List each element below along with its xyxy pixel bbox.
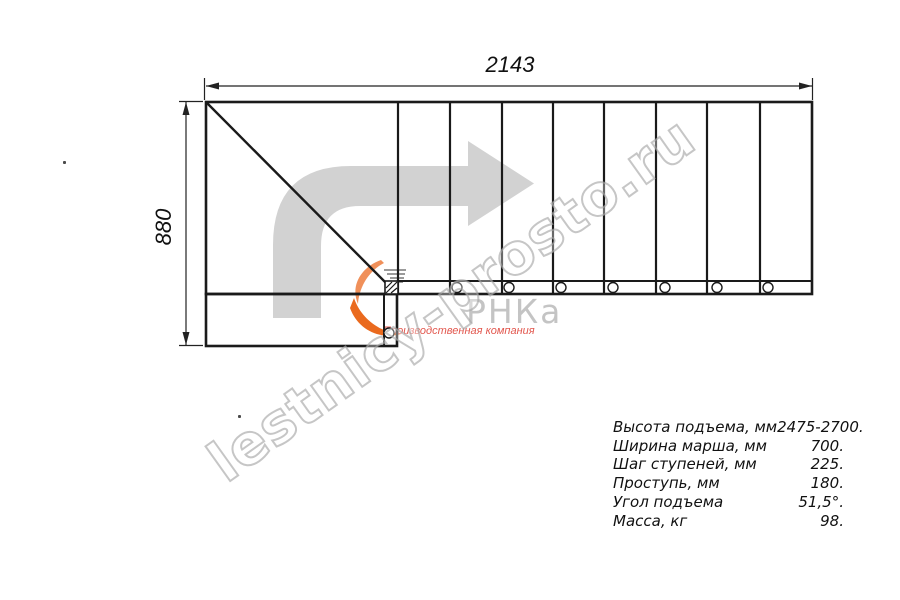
spec-label: Шаг ступеней, мм [613, 455, 757, 474]
spec-value: 180. [811, 474, 844, 493]
spec-label: Проступь, мм [613, 474, 720, 493]
spec-label: Масса, кг [613, 512, 687, 531]
spec-row: Масса, кг 98. [613, 512, 844, 531]
spec-row: Проступь, мм 180. [613, 474, 844, 493]
spec-value: 225. [811, 455, 844, 474]
spec-value: 98. [820, 512, 844, 531]
spec-label: Высота подъема, мм [613, 418, 777, 437]
dimension-line-left [179, 102, 203, 346]
spec-row: Ширина марша, мм 700. [613, 437, 844, 456]
spec-label: Угол подъема [613, 493, 723, 512]
spec-row: Высота подъема, мм 2475-2700. [613, 418, 844, 437]
dim-arrow-left [206, 83, 219, 90]
dim-arrow-right [799, 83, 812, 90]
specs-table: Высота подъема, мм 2475-2700. Ширина мар… [613, 418, 844, 530]
turn-right-arrow-icon [273, 141, 534, 318]
dim-arrow-up [183, 102, 190, 115]
spec-value: 51,5°. [798, 493, 844, 512]
dimension-line-top [205, 78, 813, 100]
spec-row: Угол подъема 51,5°. [613, 493, 844, 512]
dimension-label-width: 2143 [458, 52, 562, 78]
spec-label: Ширина марша, мм [613, 437, 767, 456]
dim-arrow-down [183, 332, 190, 345]
speck-dot [63, 161, 66, 164]
baluster-posts [384, 283, 773, 339]
spec-value: 700. [811, 437, 844, 456]
newel-post [385, 281, 398, 294]
blueprint-canvas: РНКа Производственная компания [0, 0, 900, 600]
dimension-label-height: 880 [151, 195, 177, 259]
spec-row: Шаг ступеней, мм 225. [613, 455, 844, 474]
spec-value: 2475-2700. [777, 418, 864, 437]
speck-dot [238, 415, 241, 418]
